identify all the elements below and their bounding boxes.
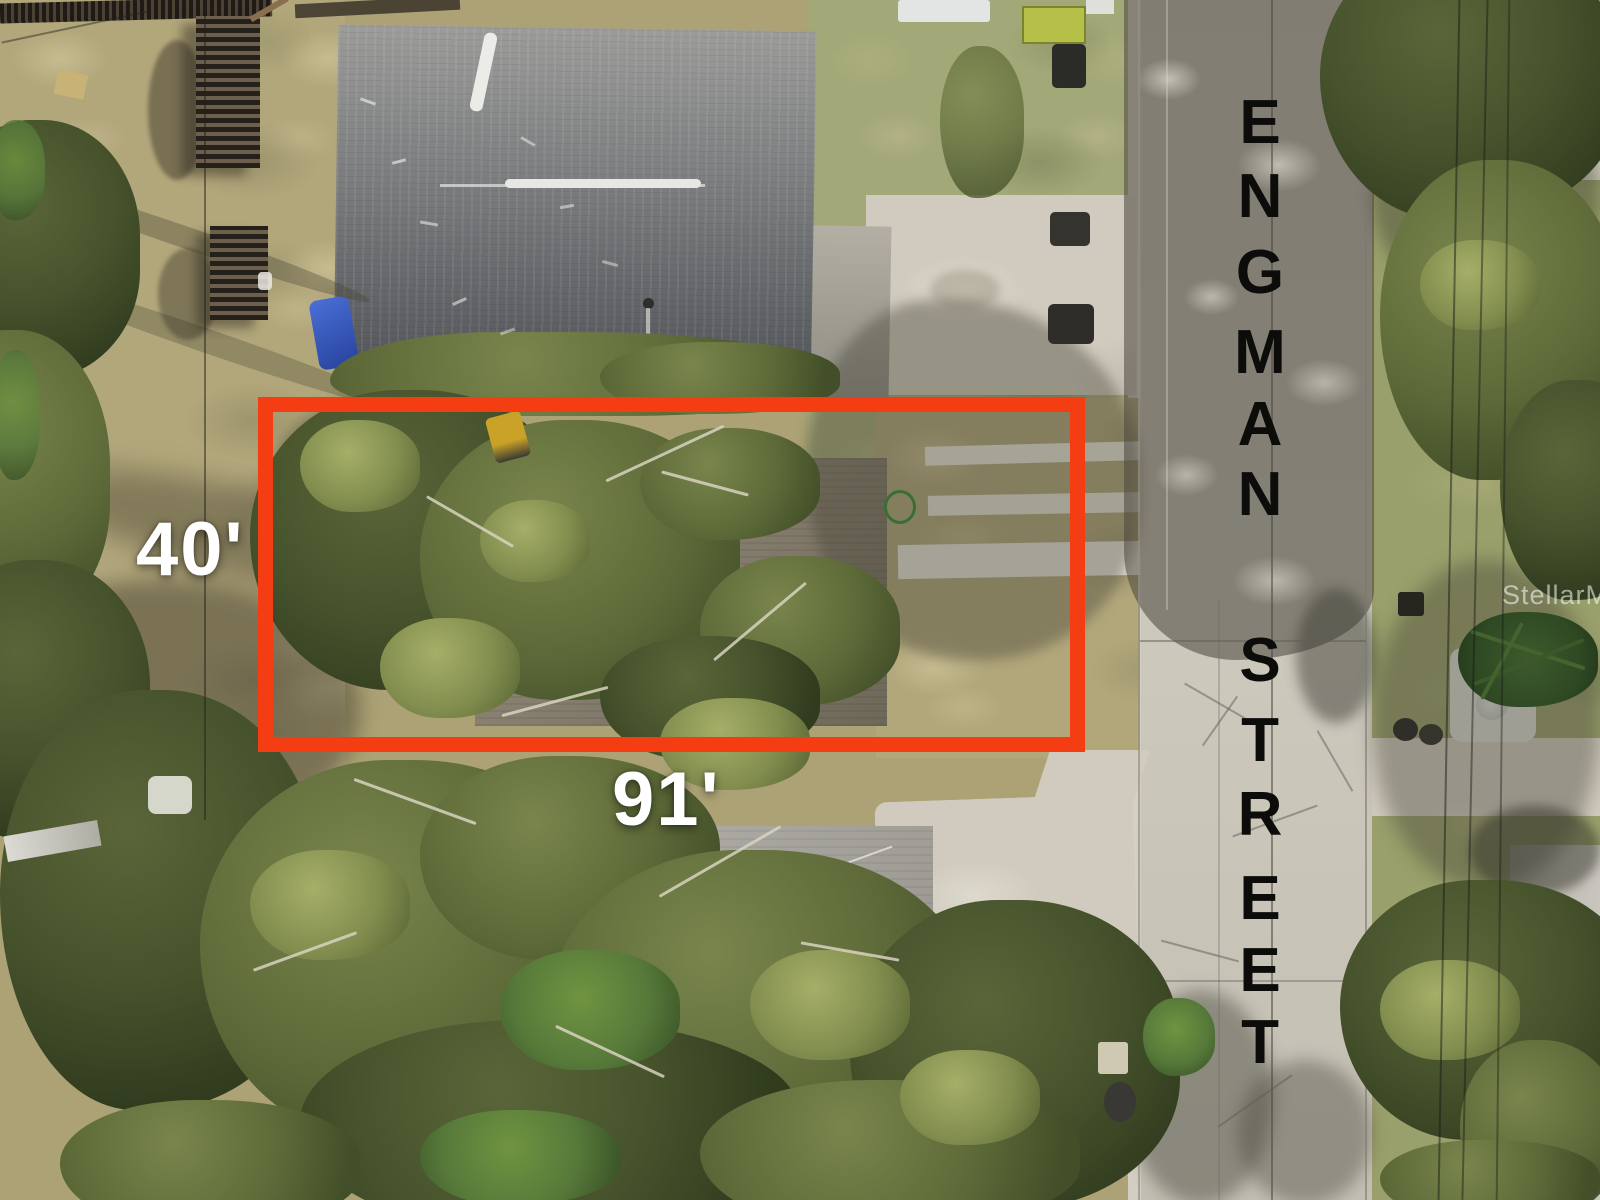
rack-shadow xyxy=(158,248,218,340)
street-letter: M xyxy=(1226,322,1294,384)
trash-bin xyxy=(1048,304,1094,344)
street-letter: G xyxy=(1226,242,1294,304)
utility-box xyxy=(1098,1042,1128,1074)
planter-pot xyxy=(1393,718,1418,741)
road-joint xyxy=(1218,600,1220,1200)
tree-shadow-on-road xyxy=(1238,1060,1372,1200)
mls-watermark: StellarMLS xyxy=(1502,580,1600,611)
street-letter: T xyxy=(1226,1012,1294,1074)
weed-clump xyxy=(0,120,45,220)
trash-bin xyxy=(1104,1082,1136,1122)
aerial-photo: 40' 91' E N G M A N S T R E E T StellarM… xyxy=(0,0,1600,1200)
property-boundary-outline xyxy=(258,397,1085,752)
planter-pot xyxy=(1419,724,1443,745)
street-letter: N xyxy=(1226,166,1294,228)
trash-bin xyxy=(1050,212,1090,246)
ridge-vent-pipe xyxy=(505,179,701,188)
tree-canopy xyxy=(900,1050,1040,1145)
lot-depth-label: 91' xyxy=(612,762,721,838)
street-letter: E xyxy=(1226,940,1294,1002)
wood-fence xyxy=(295,0,461,18)
street-letter: E xyxy=(1226,92,1294,154)
tree-canopy xyxy=(750,950,910,1060)
street-letter: E xyxy=(1226,868,1294,930)
tree-canopy xyxy=(500,950,680,1070)
tree-canopy xyxy=(420,1110,620,1200)
large-building-roof xyxy=(334,25,817,376)
palm-shadow-on-road xyxy=(1296,588,1376,723)
lot-width-label: 40' xyxy=(136,512,245,588)
tree-canopy xyxy=(1380,1140,1600,1200)
roadside-bush xyxy=(1143,998,1215,1076)
power-line xyxy=(1166,0,1168,610)
weed-clump xyxy=(0,350,40,480)
street-letter: T xyxy=(1226,710,1294,772)
driveway-stain xyxy=(930,270,1000,310)
white-object xyxy=(1086,0,1114,14)
street-letter: R xyxy=(1226,784,1294,846)
storage-shed xyxy=(898,0,990,22)
street-letter: S xyxy=(1226,630,1294,692)
tree-canopy xyxy=(940,46,1024,198)
trash-bin xyxy=(1052,44,1086,88)
white-furniture xyxy=(148,776,192,814)
white-debris xyxy=(258,272,272,290)
power-line xyxy=(204,0,206,820)
green-dumpster xyxy=(1022,6,1086,44)
street-letter: A xyxy=(1226,394,1294,456)
trash-bin xyxy=(1398,592,1424,616)
street-letter: N xyxy=(1226,464,1294,526)
driveway-apron xyxy=(1030,750,1150,812)
